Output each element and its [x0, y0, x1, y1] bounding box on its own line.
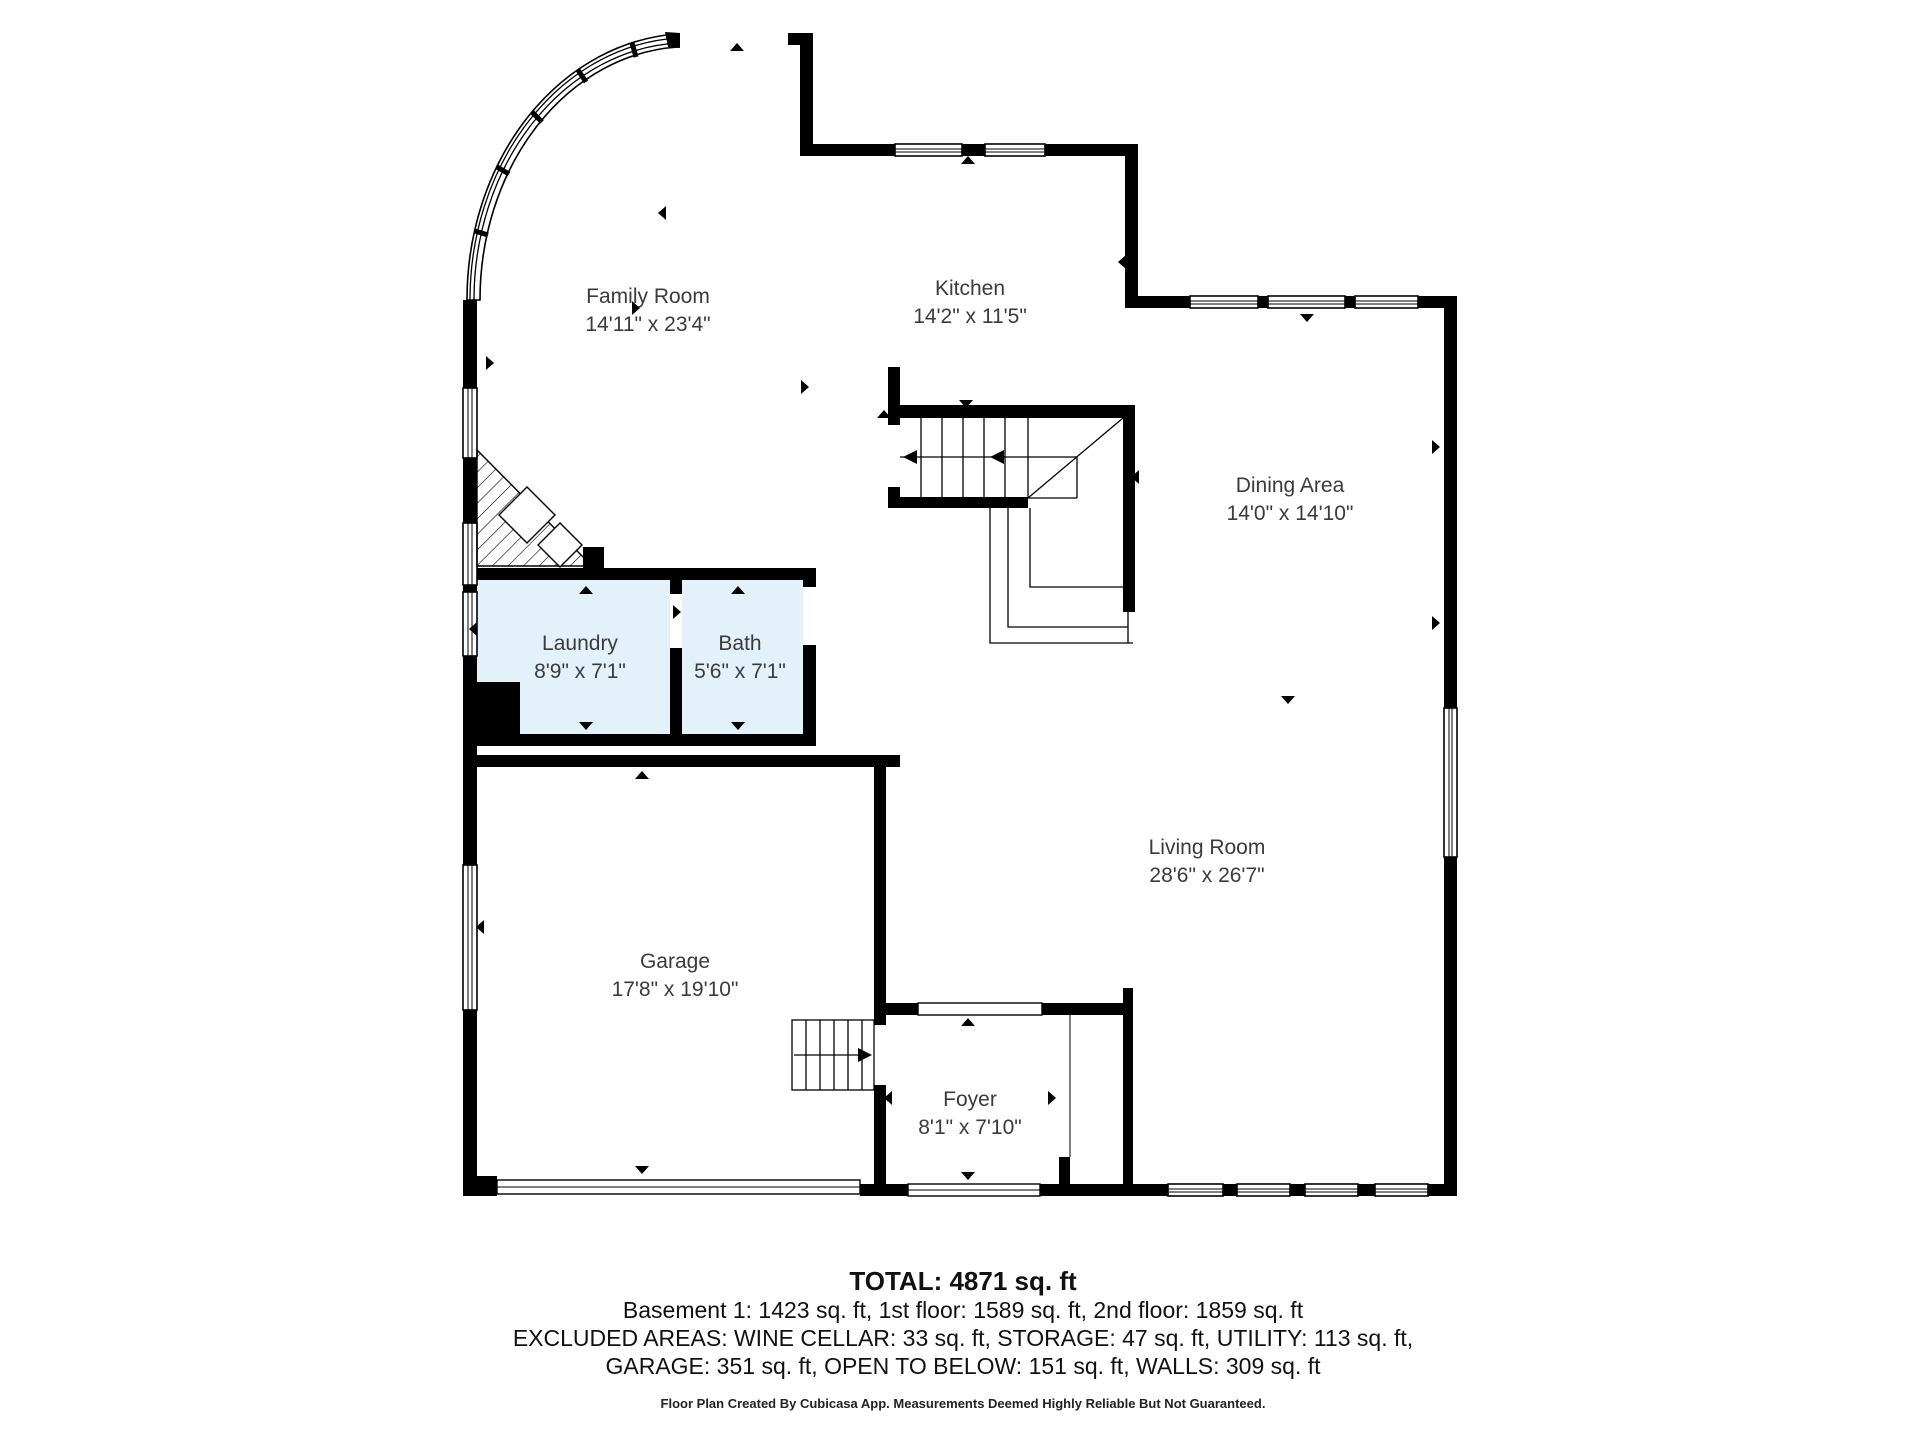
entry-door-opening — [908, 1184, 1040, 1196]
window-icon — [1375, 1184, 1428, 1196]
room-label-bath: Bath — [718, 632, 761, 655]
opening-marker-icon — [961, 1172, 975, 1180]
window-icon — [463, 865, 477, 1010]
opening-marker-icon — [1432, 616, 1440, 630]
opening-marker-icon — [1281, 696, 1295, 704]
floor-areas-text: Basement 1: 1423 sq. ft, 1st floor: 1589… — [623, 1297, 1304, 1323]
opening-marker-icon — [1300, 314, 1314, 322]
room-label-dining-area: Dining Area — [1236, 474, 1345, 497]
room-dims-laundry: 8'9" x 7'1" — [534, 660, 626, 683]
opening-marker-icon — [1118, 255, 1126, 269]
excluded-areas-text-2: GARAGE: 351 sq. ft, OPEN TO BELOW: 151 s… — [605, 1353, 1321, 1379]
opening-marker-icon — [635, 1166, 649, 1174]
opening-marker-icon — [961, 156, 975, 164]
window-icon — [1305, 1184, 1358, 1196]
opening-marker-icon — [673, 605, 681, 619]
window-icon — [1268, 296, 1345, 308]
garage-door-opening — [497, 1180, 860, 1194]
bath-room-fill — [682, 580, 803, 734]
room-label-laundry: Laundry — [542, 632, 618, 655]
window-icon — [1190, 296, 1258, 308]
disclaimer-text: Floor Plan Created By Cubicasa App. Meas… — [661, 1396, 1266, 1411]
room-dims-kitchen: 14'2" x 11'5" — [913, 305, 1027, 328]
room-label-living-room: Living Room — [1149, 836, 1266, 859]
room-label-garage: Garage — [640, 950, 710, 973]
area-summary: TOTAL: 4871 sq. ft Basement 1: 1423 sq. … — [513, 1266, 1413, 1411]
stair-direction-arrow — [903, 450, 917, 464]
window-icon — [1444, 708, 1457, 857]
floor-plan-page: Family Room 14'11" x 23'4" Kitchen 14'2"… — [0, 0, 1920, 1440]
window-icon — [985, 144, 1045, 156]
opening-marker-icon — [801, 380, 809, 394]
foyer-top-opening — [918, 1003, 1042, 1015]
window-icon — [1355, 296, 1418, 308]
window-icon — [895, 144, 962, 156]
room-dims-garage: 17'8" x 19'10" — [612, 978, 739, 1001]
excluded-areas-text-1: EXCLUDED AREAS: WINE CELLAR: 33 sq. ft, … — [513, 1325, 1413, 1351]
room-dims-family-room: 14'11" x 23'4" — [585, 313, 710, 336]
room-dims-foyer: 8'1" x 7'10" — [918, 1116, 1022, 1139]
opening-marker-icon — [635, 771, 649, 779]
window-icon — [1237, 1184, 1290, 1196]
opening-marker-icon — [658, 206, 666, 220]
opening-marker-icon — [961, 1018, 975, 1026]
room-dims-bath: 5'6" x 7'1" — [694, 660, 786, 683]
room-dims-living-room: 28'6" x 26'7" — [1149, 864, 1264, 887]
room-label-kitchen: Kitchen — [935, 277, 1005, 300]
main-staircase — [900, 418, 1133, 643]
room-label-family-room: Family Room — [586, 285, 710, 308]
stair-direction-arrow — [990, 450, 1004, 464]
floor-plan-drawing: Family Room 14'11" x 23'4" Kitchen 14'2"… — [0, 0, 1920, 1440]
bay-window-arc — [467, 32, 680, 300]
total-area-text: TOTAL: 4871 sq. ft — [849, 1266, 1077, 1296]
room-dims-dining-area: 14'0" x 14'10" — [1227, 502, 1354, 525]
opening-marker-icon — [1048, 1091, 1056, 1105]
fireplace — [477, 450, 592, 567]
window-icon — [1168, 1184, 1223, 1196]
opening-marker-icon — [730, 43, 744, 51]
window-icon — [463, 388, 477, 458]
room-label-foyer: Foyer — [943, 1088, 997, 1111]
window-icon — [463, 523, 477, 585]
opening-marker-icon — [1432, 440, 1440, 454]
opening-marker-icon — [486, 356, 494, 370]
basement-staircase — [792, 1020, 874, 1090]
